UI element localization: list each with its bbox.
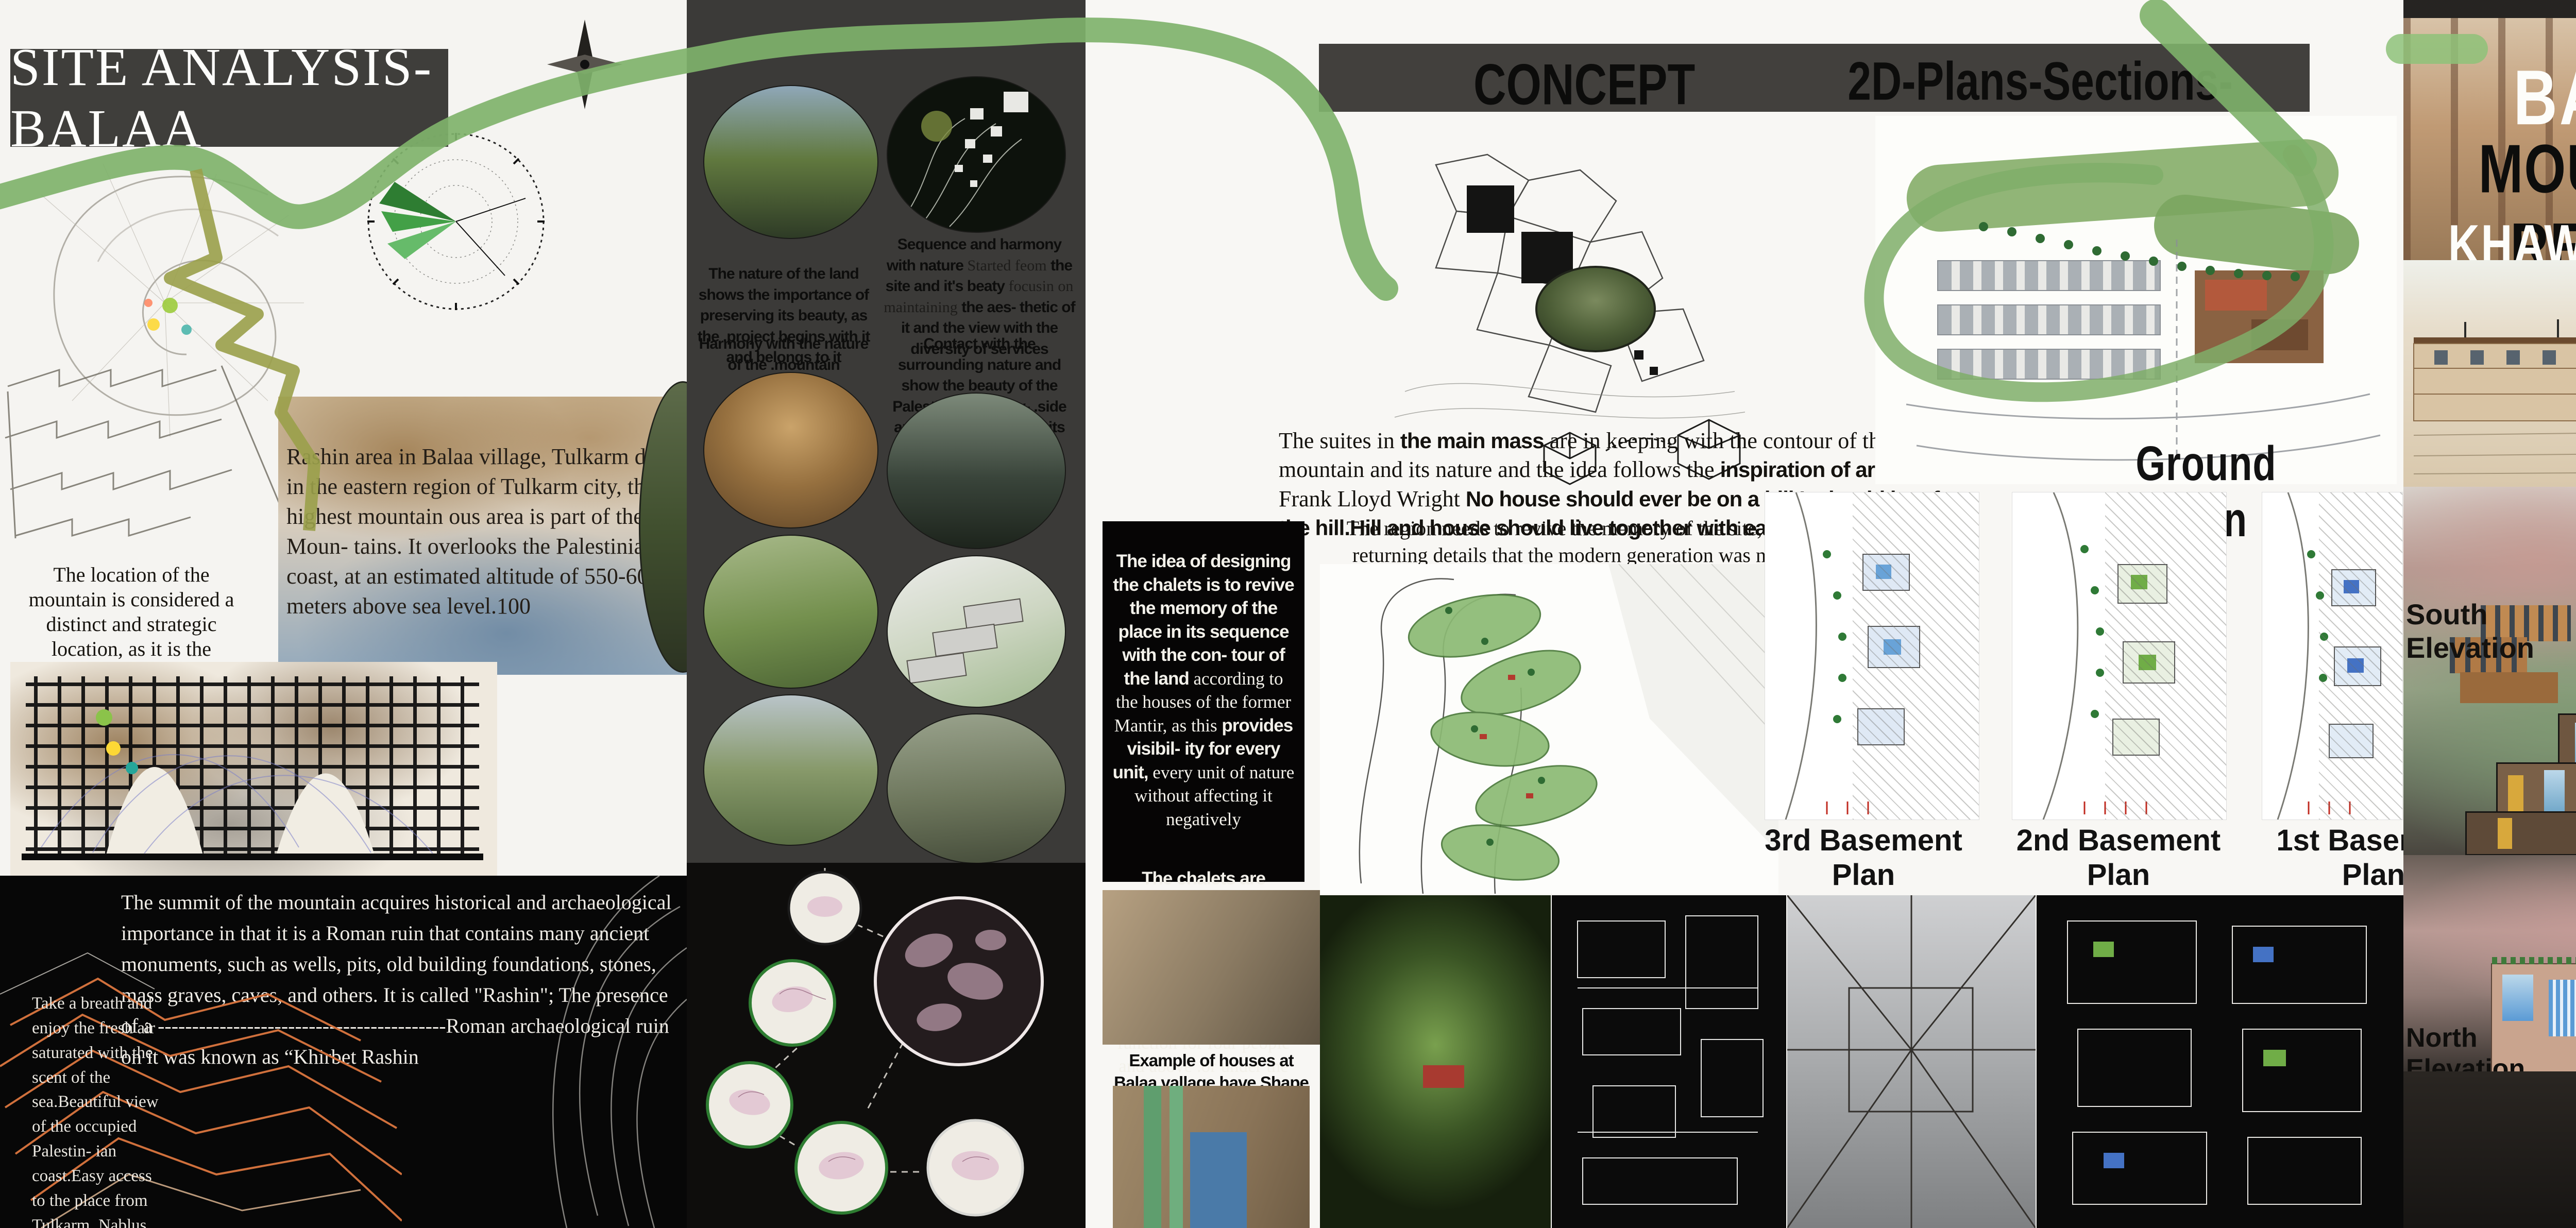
drawing-tile-plans [2037,895,2403,1228]
presentation-board: SITE ANALYSIS-BALAA [0,0,2576,1228]
caption-harmony-mountain: Harmony with the nature of the .mountain [691,334,876,376]
photo-ellipse-brown-hills [703,372,878,528]
dark-footer-strip [2403,1071,2576,1228]
ground-plan-drawing [1875,116,2397,484]
section-b-drawing [2465,713,2576,852]
long-section-strip [2403,260,2576,487]
green-pillar [1170,1086,1183,1228]
aerial-photo-inset [1536,267,1655,351]
white-line-drawings [1552,895,1786,1228]
photo-ellipse-valley-view [703,85,878,239]
panel-elevations: BALAA MOUNTAIN RESORT KHAWLA SABRI [2403,0,2576,1228]
blue-door [1190,1132,1247,1228]
paragraph-take-a-breath: Take a breath and enjoy the fresh air sa… [32,992,167,1228]
concept-header-bar: CONCEPT 2D-Plans-Sections-Elevations [1319,44,2310,112]
basement-plan-1st [2262,492,2403,820]
ground-plan-trees-roads [1875,116,2397,484]
concept-title: CONCEPT [1473,51,1695,118]
terraces-sketch [0,309,319,556]
photo-site-night-render [1320,895,1551,1228]
elevations-watercolor-board [2403,487,2576,855]
panel-nature-study: The nature of the land shows the importa… [687,0,1086,1228]
title-photo-interior: BALAA MOUNTAIN RESORT KHAWLA SABRI [2403,18,2576,260]
text-segment: every unit of nature without affecting i… [1134,762,1294,829]
green-pillar [1144,1086,1161,1228]
plan-hatch-region [2105,492,2226,820]
section-door [2508,775,2523,814]
text-segment: Started feom [963,257,1050,274]
text-segment: The suites in [1279,428,1400,453]
photo-stone-house-blue-door [1113,1086,1310,1228]
photo-ellipse-landscape [703,694,878,846]
wind-rose-icon [355,121,556,322]
resort-title-line1: BALAA [2403,53,2576,143]
compass-icon [541,15,629,118]
roof-planting [2492,957,2576,964]
elevation-facade-north [2573,610,2576,713]
basement-plan-3rd [1765,492,1979,820]
basement-3rd-label: 3rd Basement Plan [1753,823,1974,892]
basement-2nd-label: 2nd Basement Plan [2008,823,2229,892]
bubble-diagram [687,863,1086,1228]
window [2502,975,2533,1021]
site-plan-drawing [1320,564,1778,894]
text-segment: Frank Lloyd Wright [1279,486,1466,511]
section-door [2498,818,2512,849]
sequence-diagram [888,77,1065,232]
text-segment: the main mass [1400,429,1544,453]
white-contour-arcs [464,876,687,1228]
bubble-diagram-area [687,863,1086,1228]
long-section-drawing [2403,260,2576,487]
facade-block [2460,672,2558,703]
south-elevation-label: South Elevation [2406,598,2566,664]
site-black-footer: The summit of the mountain acquires hist… [0,876,687,1228]
section-window [2544,770,2565,814]
photo-ellipse-dark-mountain [887,393,1066,549]
panel-site-analysis: SITE ANALYSIS-BALAA [0,0,687,1228]
red-structure [1423,1065,1464,1088]
massing-blocks [888,556,1065,707]
render-ellipse-massing-model [887,555,1066,708]
arch-grid-sketch [10,662,497,878]
paragraph-chalets-idea: The idea of designing the chalets is to … [1112,550,1295,831]
photo-stone-houses [1103,890,1320,1045]
chalets-text-box: The idea of designing the chalets is to … [1103,521,1304,882]
white-plan-drawings [2037,895,2403,1228]
plan-hatch-region [1853,492,1979,820]
section-room [2465,811,2576,856]
photo-ellipse-green-hills [703,535,878,689]
render-wireframe-perspective [1787,895,2036,1228]
west-elevation-label: West Elevation [2558,471,2576,508]
panel-concept-plans: CONCEPT 2D-Plans-Sections-Elevations [1086,0,2403,1228]
diagram-ellipse-sequence [887,76,1066,233]
arch-watercolor-art [10,662,497,878]
plan-hatch-region [2319,492,2402,820]
drawing-tile-sections [1552,895,1786,1228]
basement-plan-2nd [2012,492,2227,820]
photo-ellipse-village [887,713,1066,864]
perspective-lines [1787,895,2036,1228]
